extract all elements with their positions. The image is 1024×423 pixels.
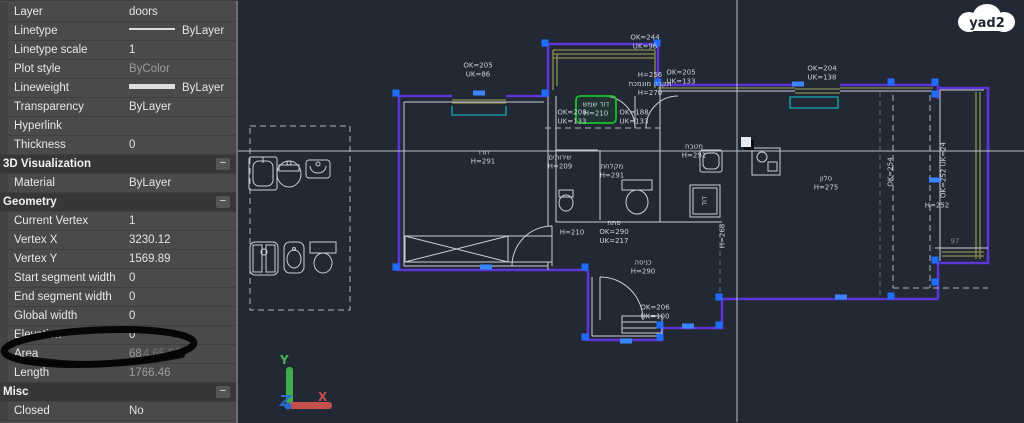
property-label: Global width xyxy=(14,310,77,322)
ucs-icon: Y X xyxy=(279,353,332,410)
property-value[interactable]: doors xyxy=(129,6,158,18)
property-label: Thickness xyxy=(14,139,66,151)
property-section-header[interactable]: Geometry− xyxy=(0,193,236,212)
collapse-button[interactable]: − xyxy=(216,196,230,208)
property-value[interactable]: 0 xyxy=(129,310,135,322)
property-value[interactable]: ByColor xyxy=(129,63,170,75)
property-section-header[interactable]: Misc− xyxy=(0,383,236,402)
property-value[interactable]: ByLayer xyxy=(129,25,224,37)
property-value[interactable]: 1 xyxy=(129,44,135,56)
property-label: Misc xyxy=(3,386,29,398)
pickbox-cursor[interactable] xyxy=(741,137,754,150)
legend-fixtures xyxy=(249,157,336,275)
property-label: 3D Visualization xyxy=(3,158,91,170)
ucs-x-label: X xyxy=(318,390,328,404)
property-row[interactable]: LinetypeByLayer xyxy=(0,22,236,41)
yad2-logo: yad2 xyxy=(954,2,1020,36)
property-label: End segment width xyxy=(14,291,112,303)
ucs-y-label: Y xyxy=(279,353,289,367)
property-row[interactable]: Current Vertex1 xyxy=(0,212,236,231)
property-value[interactable]: ByLayer xyxy=(129,82,224,94)
property-row[interactable]: Vertex Y1569.89 xyxy=(0,250,236,269)
property-row[interactable]: Plot styleByColor xyxy=(0,60,236,79)
property-label: Material xyxy=(14,177,55,189)
property-value[interactable]: No xyxy=(129,405,144,417)
property-label: Transparency xyxy=(14,101,84,113)
property-label: Lineweight xyxy=(14,82,69,94)
solar-heater-box xyxy=(576,96,616,123)
property-row[interactable]: Length1766.46 xyxy=(0,364,236,383)
property-label: Start segment width xyxy=(14,272,116,284)
property-value[interactable]: 0 xyxy=(129,291,135,303)
property-row[interactable]: Layerdoors xyxy=(0,3,236,22)
property-label: Vertex X xyxy=(14,234,57,246)
bathroom-fixtures xyxy=(559,180,652,214)
property-row[interactable]: MaterialByLayer xyxy=(0,174,236,193)
property-value[interactable]: 0 xyxy=(129,329,135,341)
linetype-swatch xyxy=(129,28,175,30)
property-label: Plot style xyxy=(14,63,61,75)
property-label: Linetype xyxy=(14,25,57,37)
property-value[interactable]: 1 xyxy=(129,215,135,227)
kitchen-fixtures xyxy=(690,148,780,217)
property-label: Layer xyxy=(14,6,43,18)
linetype-swatch xyxy=(129,84,175,89)
collapse-button[interactable]: − xyxy=(216,158,230,170)
property-value[interactable]: ByLayer xyxy=(129,177,171,189)
property-label: Closed xyxy=(14,405,50,417)
property-value[interactable]: 3230.12 xyxy=(129,234,171,246)
property-row[interactable]: Elevation0 xyxy=(0,326,236,345)
property-row[interactable]: Linetype scale1 xyxy=(0,41,236,60)
property-label: Area xyxy=(14,348,38,360)
property-row[interactable]: End segment width0 xyxy=(0,288,236,307)
property-row[interactable]: Start segment width0 xyxy=(0,269,236,288)
property-row[interactable]: ClosedNo xyxy=(0,402,236,421)
property-row[interactable]: Vertex X3230.12 xyxy=(0,231,236,250)
property-label: Current Vertex xyxy=(14,215,88,227)
property-label: Geometry xyxy=(3,196,57,208)
property-row[interactable]: TransparencyByLayer xyxy=(0,98,236,117)
property-label: Elevation xyxy=(14,329,61,341)
doors xyxy=(512,96,678,320)
yad2-logo-text: yad2 xyxy=(969,16,1005,31)
entrance-steps xyxy=(622,316,662,333)
property-label: Vertex Y xyxy=(14,253,57,265)
property-row[interactable]: LineweightByLayer xyxy=(0,79,236,98)
property-value[interactable]: ByLayer xyxy=(129,101,171,113)
property-value[interactable]: 0 xyxy=(129,139,135,151)
property-section-header[interactable]: 3D Visualization− xyxy=(0,155,236,174)
property-value[interactable]: 0 xyxy=(129,272,135,284)
legend-boundary xyxy=(250,126,350,310)
property-label: Length xyxy=(14,367,49,379)
property-value[interactable]: 1569.89 xyxy=(129,253,171,265)
property-label: Hyperlink xyxy=(14,120,62,132)
property-row[interactable]: Global width0 xyxy=(0,307,236,326)
property-row[interactable]: Area684.65.55 xyxy=(0,345,236,364)
property-row[interactable]: Thickness0 xyxy=(0,136,236,155)
properties-panel: LayerdoorsLinetypeByLayerLinetype scale1… xyxy=(0,0,238,423)
closet-x xyxy=(405,236,552,262)
collapse-button[interactable]: − xyxy=(216,386,230,398)
property-label: Linetype scale xyxy=(14,44,88,56)
property-value[interactable]: 1766.46 xyxy=(129,367,171,379)
property-value[interactable]: 684.65.55 xyxy=(129,348,181,360)
property-row[interactable]: Hyperlink xyxy=(0,117,236,136)
crosshair-cursor[interactable] xyxy=(238,0,1024,422)
